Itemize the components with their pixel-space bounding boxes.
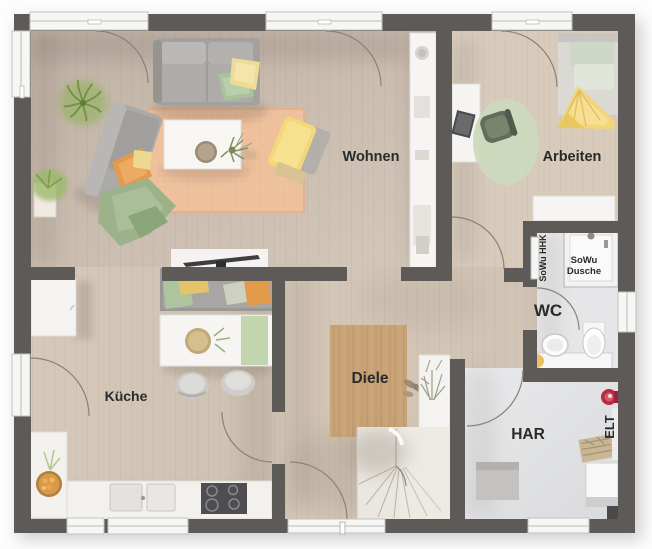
- svg-text:ELT: ELT: [602, 415, 617, 439]
- svg-text:Arbeiten: Arbeiten: [543, 149, 602, 165]
- svg-text:HAR: HAR: [511, 426, 545, 443]
- svg-text:Diele: Diele: [351, 370, 388, 387]
- svg-text:Wohnen: Wohnen: [343, 149, 400, 165]
- svg-text:SoWu: SoWu: [571, 255, 598, 266]
- svg-text:Dusche: Dusche: [567, 266, 601, 277]
- svg-text:Küche: Küche: [105, 388, 148, 404]
- svg-text:SoWu HHK: SoWu HHK: [538, 234, 548, 282]
- svg-text:WC: WC: [534, 301, 562, 320]
